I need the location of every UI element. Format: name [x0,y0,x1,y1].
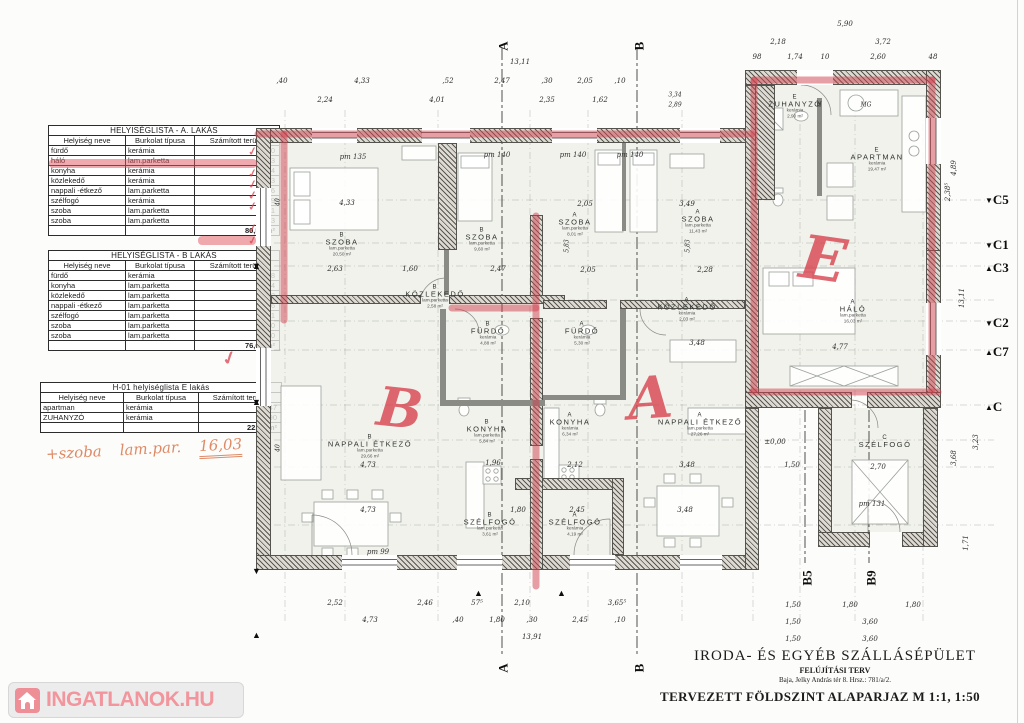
room-label-b-szelfogo: BSZÉLFOGÓlam.parketta3,61 m² [464,513,517,538]
room-material: kerámia [772,109,817,114]
dimension-inner_rot: 40 [275,198,282,206]
dimension-top_row2: 2,24 [317,96,333,104]
dimension-right_col: 3,68 [950,450,958,466]
room-name: SZÉLFOGÓ [859,441,912,449]
handwritten-note-middle: lam.par. [119,438,182,463]
room-list-table-a-grid: HELYISÉGLISTA - A. LAKÁSHelyiség neveBur… [48,125,280,236]
window [312,128,357,143]
wall-segment [530,459,543,570]
dimension-br_row2: 3,60 [862,618,878,626]
table-cell: kerámia [126,146,195,156]
grid-marker-label: C7 [993,344,1009,359]
dimension-e_row2: 48 [929,53,938,61]
grid-marker-c3: ▲C3 [985,260,1009,276]
wall-segment [923,408,938,547]
pm-label: pm 131 [859,500,886,508]
room-area: 29,66 m² [334,454,406,459]
dimension-inner: 1,60 [402,265,418,273]
table-cell: lam.parketta [126,321,195,331]
dimension-e_row2: 10 [821,53,830,61]
wall-segment [271,295,421,304]
table-cell [41,423,124,433]
table-cell: kerámia [124,413,199,423]
project-address: Baja, Jelky András tér 8. Hrsz.: 781/a/2… [660,676,1010,684]
room-material: lam.parketta [328,247,356,252]
window [256,188,271,246]
dimension-right_col: 1,71 [962,535,970,551]
table-cell: lam.parketta [126,281,195,291]
dimension-top_row1: ,30 [541,77,552,85]
window [680,555,722,570]
scan-edge-artifact [1017,0,1018,723]
title-block: IRODA- ÉS EGYÉB SZÁLLÁSÉPÜLET FELÚJÍTÁSI… [660,648,1010,705]
table-cell: kerámia [124,403,199,413]
wall-segment [530,318,543,446]
dimension-right_col: 3,23 [972,434,980,450]
wall-segment [745,70,941,85]
partition-segment [440,400,545,406]
handwritten-note-prefix: +szoba [46,442,103,467]
dimension-inner: 2,12 [567,461,583,469]
dimension-left_pair: 2,89 [668,102,681,109]
grid-marker-arrow-icon: ▲ [985,403,993,412]
table-cell: lam.parketta [126,301,195,311]
pm-label: pm 99 [367,548,389,556]
dimension-bottom_row2: 1,80 [489,616,505,624]
dimension-inner: 2,45 [569,506,585,514]
dimension-bottom_row2: ,30 [526,616,537,624]
dimension-br_row1: 1,80 [905,601,921,609]
handwritten-note-value: 16,03 [199,435,243,459]
table-cell: lam.parketta [126,331,195,341]
window [457,555,502,570]
table-cell: fürdő [49,146,126,156]
dimension-top_row1: ,10 [614,77,625,85]
room-area: 2,58 m² [410,304,460,309]
grid-marker-label: C2 [993,315,1009,330]
table-cell [126,226,195,236]
room-area: 2,90 m² [772,114,817,119]
section-marker-flag-icon: ▼ [252,566,261,576]
dimension-e_row2: 98 [753,53,762,61]
entrance-marker-icon: ▲ [557,588,566,598]
grid-marker-arrow-icon: ▼ [985,319,993,328]
dimension-inner: 2,05 [580,266,596,274]
wall-segment [867,392,941,408]
wall-segment [818,408,832,547]
dimension-top_row1: ,40 [276,77,287,85]
room-area: 19,47 m² [854,167,899,172]
dimension-inner_rot: 40 [275,444,282,452]
room-material: lam.parketta [334,449,406,454]
dimension-bottom_row1: 3,65⁵ [608,599,626,607]
room-area: 5,84 m² [470,439,505,444]
dimension-br_row1: 1,80 [842,601,858,609]
dimension-inner_rot: 5,83 [564,239,571,252]
table-cell: HELYISÉGLISTA - B LAKÁS [49,251,280,261]
pm-label: pm 140 [560,151,587,159]
room-material: lam.parketta [470,434,505,439]
dimension-inner: 3,48 [689,339,705,347]
dimension-top_row1: ,52 [442,77,453,85]
table-cell: lam.parketta [126,186,195,196]
table-cell: szoba [49,321,126,331]
grid-marker-c5: ▼C5 [985,192,1009,208]
dimension-top_row2: 4,01 [429,96,445,104]
ingatlanok-logo[interactable]: INGATLANOK.HU [8,682,244,718]
dimension-inner: 2,28 [697,266,713,274]
room-area: 8,01 m² [561,232,589,237]
room-label-a-konyha: AKONYHAkerámia6,34 m² [550,413,591,438]
table-cell: nappali -étkező [49,186,126,196]
wall-segment [256,555,753,570]
dimension-br_row2: 1,50 [785,618,801,626]
dimension-right_col: 13,11 [958,288,966,308]
dimension-bottom_row2: ,10 [614,616,625,624]
room-area: 4,19 m² [553,532,598,537]
room-material: kerámia [854,162,899,167]
room-material: lam.parketta [468,527,513,532]
room-list-table-b-grid: HELYISÉGLISTA - B LAKÁSHelyiség neveBurk… [48,250,280,351]
table-cell: Helyiség neve [49,261,126,271]
dimension-bottom_row2: ,40 [452,616,463,624]
section-marker-a: A [496,41,512,50]
table-cell: lam.parketta [126,311,195,321]
wall-segment [612,478,624,555]
room-material: lam.parketta [840,314,866,319]
room-material: kerámia [553,427,588,432]
dimension-e_row1: 3,72 [875,38,891,46]
table-cell: közlekedő [49,291,126,301]
grid-marker-label: C [993,399,1002,414]
room-area: 4,88 m² [473,341,502,346]
dimension-inner_rot: 5,83 [685,239,692,252]
dimension-inner: 3,48 [677,506,693,514]
grid-marker-label: C1 [993,237,1009,252]
dimension-e_row2: 2,60 [870,53,886,61]
dimension-inner: 1,50 [784,461,800,469]
table-cell: Burkolat típusa [126,261,195,271]
window [552,128,597,143]
dimension-inner: 2,47 [490,265,506,273]
table-cell: Burkolat típusa [126,136,195,146]
table-cell: nappali -étkező [49,301,126,311]
section-marker-b9: B9 [864,570,880,585]
table-cell: Helyiség neve [41,393,124,403]
project-subtitle: FELÚJÍTÁSI TERV [660,666,1010,675]
dimension-e_total: 5,90 [837,20,853,28]
room-material: lam.parketta [561,227,589,232]
room-material: kerámia [567,336,596,341]
pm-label: pm 140 [617,151,644,159]
partition-segment [440,309,446,404]
table-cell: ZUHANYZÓ [41,413,124,423]
wall-segment [745,408,759,570]
partition-segment [543,395,625,400]
grid-marker-arrow-icon: ▲ [985,348,993,357]
dimension-bottom_row2: 2,45 [572,616,588,624]
dimension-inner: 2,63 [327,265,343,273]
dimension-e_row1: 2,18 [770,38,786,46]
room-label-b-furdo: BFÜRDŐkerámia4,88 m² [471,322,505,347]
room-label-e-apartman: EAPARTMANkerámia19,47 m² [851,148,904,173]
window [570,555,615,570]
section-marker-a: A [496,663,512,672]
dimension-inner: 4,73 [360,461,376,469]
table-cell: szélfogó [49,196,126,206]
pm-label: pm 135 [340,153,367,161]
dimension-br_row3: 1,50 [785,635,801,643]
room-area: 16,03 m² [840,319,866,324]
dimension-top_row2: 2,35 [539,96,555,104]
room-label-a-kozlekedo: AKÖZLEKEDŐkerámia2,03 m² [657,298,716,323]
room-list-table-e-grid: H-01 helyiséglista E lakásHelyiség neveB… [40,382,282,433]
table-cell: lam.parketta [126,216,195,226]
logo-text: INGATLANOK.HU [46,688,214,712]
grid-marker-c1: ▼C1 [985,237,1009,253]
wall-segment [543,300,607,309]
table-cell: HELYISÉGLISTA - A. LAKÁS [49,126,280,136]
section-marker-b: B [631,42,647,51]
grid-marker-label: C3 [993,260,1009,275]
dimension-bottom_row1: 2,10 [514,599,530,607]
dimension-inner: 3,48 [679,461,695,469]
section-marker-flag-icon: ▲ [252,261,261,271]
room-material: kerámia [662,312,712,317]
dimension-inner: 2,70 [870,463,886,471]
table-cell: Burkolat típusa [124,393,199,403]
table-cell [126,341,195,351]
room-label-a-szoba-1: ASZOBAlam.parketta8,01 m² [559,213,592,238]
wall-segment [818,532,870,547]
dimension-top_row1: 2,47 [494,77,510,85]
handwritten-note: +szoba lam.par. 16,03 [46,435,243,467]
marker-letter-a: A [625,363,675,434]
dimension-inner: 2,05 [577,200,593,208]
halo-row-highlight [49,159,257,168]
room-material: kerámia [473,336,502,341]
room-label-c-szelfogo: CSZÉLFOGÓ [859,435,912,449]
dimension-top_row2: 1,62 [592,96,608,104]
grid-marker-label: C5 [993,192,1009,207]
table-cell: lam.parketta [126,291,195,301]
grid-marker-c: ▲C [985,399,1002,415]
dimension-app_labels: H [816,102,821,109]
dimension-top_row1: 4,33 [354,77,370,85]
room-area: 6,34 m² [553,432,588,437]
dimension-br_row1: 1,50 [785,601,801,609]
room-area: 20,50 m² [328,252,356,257]
dimension-inner: 1,80 [510,506,526,514]
window [422,128,470,143]
grid-marker-arrow-icon: ▼ [985,196,993,205]
house-icon [15,688,40,713]
dimension-br_row3: 3,60 [862,635,878,643]
dimension-top_total: 13,11 [510,58,530,66]
project-title: IRODA- ÉS EGYÉB SZÁLLÁSÉPÜLET [660,648,1010,665]
table-cell [124,423,199,433]
table-cell [49,226,126,236]
dimension-bottom_row1: 2,46 [417,599,433,607]
room-area: 5,30 m² [567,341,596,346]
room-list-table-e: H-01 helyiséglista E lakásHelyiség neveB… [40,382,282,433]
room-label-b-szoba-1: BSZOBAlam.parketta20,50 m² [326,233,359,258]
marker-letter-b: B [374,374,426,442]
section-marker-flag-icon: ▲ [252,630,261,640]
room-area: 3,61 m² [468,532,513,537]
table-cell: szoba [49,216,126,226]
section-marker-b5: B5 [800,570,816,585]
grid-marker-arrow-icon: ▲ [985,264,993,273]
room-material: kerámia [553,527,598,532]
dimension-bottom_row1: 57⁵ [471,599,483,607]
dimension-e_row2: 1,74 [787,53,803,61]
grid-marker-c7: ▲C7 [985,344,1009,360]
table-cell: Helyiség neve [49,136,126,146]
door-opening [797,70,833,85]
room-area: 27,26 m² [664,432,736,437]
table-cell [49,341,126,351]
wall-segment [530,215,543,303]
marker-letter-e: E [795,222,850,298]
window [926,303,941,355]
table-cell: konyha [49,281,126,291]
window [342,555,397,570]
table-cell: kerámia [126,176,195,186]
room-list-table-b: HELYISÉGLISTA - B LAKÁSHelyiség neveBurk… [48,250,280,351]
room-area: 2,03 m² [662,317,712,322]
floor-plan: BSZOBAlam.parketta20,50 m²BSZOBAlam.park… [252,18,1014,670]
room-list-table-a: HELYISÉGLISTA - A. LAKÁSHelyiség neveBur… [48,125,280,236]
scanned-floor-plan-page: HELYISÉGLISTA - A. LAKÁSHelyiség neveBur… [0,0,1024,723]
grid-marker-c2: ▼C2 [985,315,1009,331]
table-cell: közlekedő [49,176,126,186]
table-cell: kerámia [126,271,195,281]
pm-label: pm 140 [484,151,511,159]
room-label-e-zuhanyzo: EZUHANYZÓkerámia2,90 m² [768,95,821,120]
dimension-bottom_row2: 4,73 [362,616,378,624]
section-marker-b: B [631,664,647,673]
room-label-b-konyha: BKONYHAlam.parketta5,84 m² [467,420,508,445]
drawing-title: TERVEZETT FÖLDSZINT ALAPARJAZ M 1:1, 1:5… [660,689,1010,705]
dimension-left_pair: 3,34 [668,92,681,99]
room-area: 11,43 m² [684,229,712,234]
dimension-inner: 3,49 [679,200,695,208]
dimension-right_col: 4,89 [950,160,958,176]
dimension-app_labels: MG [861,102,872,109]
dimension-right_col: 2,38⁵ [944,183,952,201]
room-label-a-szoba-2: ASZOBAlam.parketta11,43 m² [682,210,715,235]
room-label-a-szelfogo: ASZÉLFOGÓkerámia4,19 m² [549,513,602,538]
dimension-inner: 4,77 [832,343,848,351]
wall-segment [745,392,852,408]
room-material: lam.parketta [684,224,712,229]
room-material: lam.parketta [468,242,496,247]
dimension-inner: 4,73 [360,506,376,514]
room-label-b-kozlekedo: BKÖZLEKEDŐlam.parketta2,58 m² [405,285,464,310]
wall-segment [438,143,457,250]
table-cell: apartman [41,403,124,413]
table-cell: szoba [49,206,126,216]
section-marker-flag-icon: ▲ [252,397,261,407]
dimension-bottom_row1: 2,52 [327,599,343,607]
room-label-halo: AHÁLÓlam.parketta16,03 m² [838,300,868,325]
window [926,118,941,164]
dimension-top_row1: 2,05 [577,77,593,85]
table-cell: szoba [49,331,126,341]
table-cell: H-01 helyiséglista E lakás [41,383,282,393]
window [680,128,720,143]
table-cell: lam.parketta [126,206,195,216]
entrance-marker-icon: ▲ [474,588,483,598]
table-cell: szélfogó [49,311,126,321]
room-label-a-furdo: AFÜRDŐkerámia5,30 m² [565,322,599,347]
dimension-bottom_total: 13,91 [522,633,542,641]
room-material: lam.parketta [664,427,736,432]
grid-marker-arrow-icon: ▼ [985,241,993,250]
table-cell: kerámia [126,196,195,206]
partition-segment [620,309,626,400]
level-marker: ±0,00 [764,438,785,446]
dimension-inner: 4,33 [339,199,355,207]
room-area: 9,60 m² [468,247,496,252]
room-label-b-szoba-2: BSZOBAlam.parketta9,60 m² [466,228,499,253]
room-material: lam.parketta [410,299,460,304]
dimension-inner: 1,96 [485,459,501,467]
table-cell: fürdő [49,271,126,281]
